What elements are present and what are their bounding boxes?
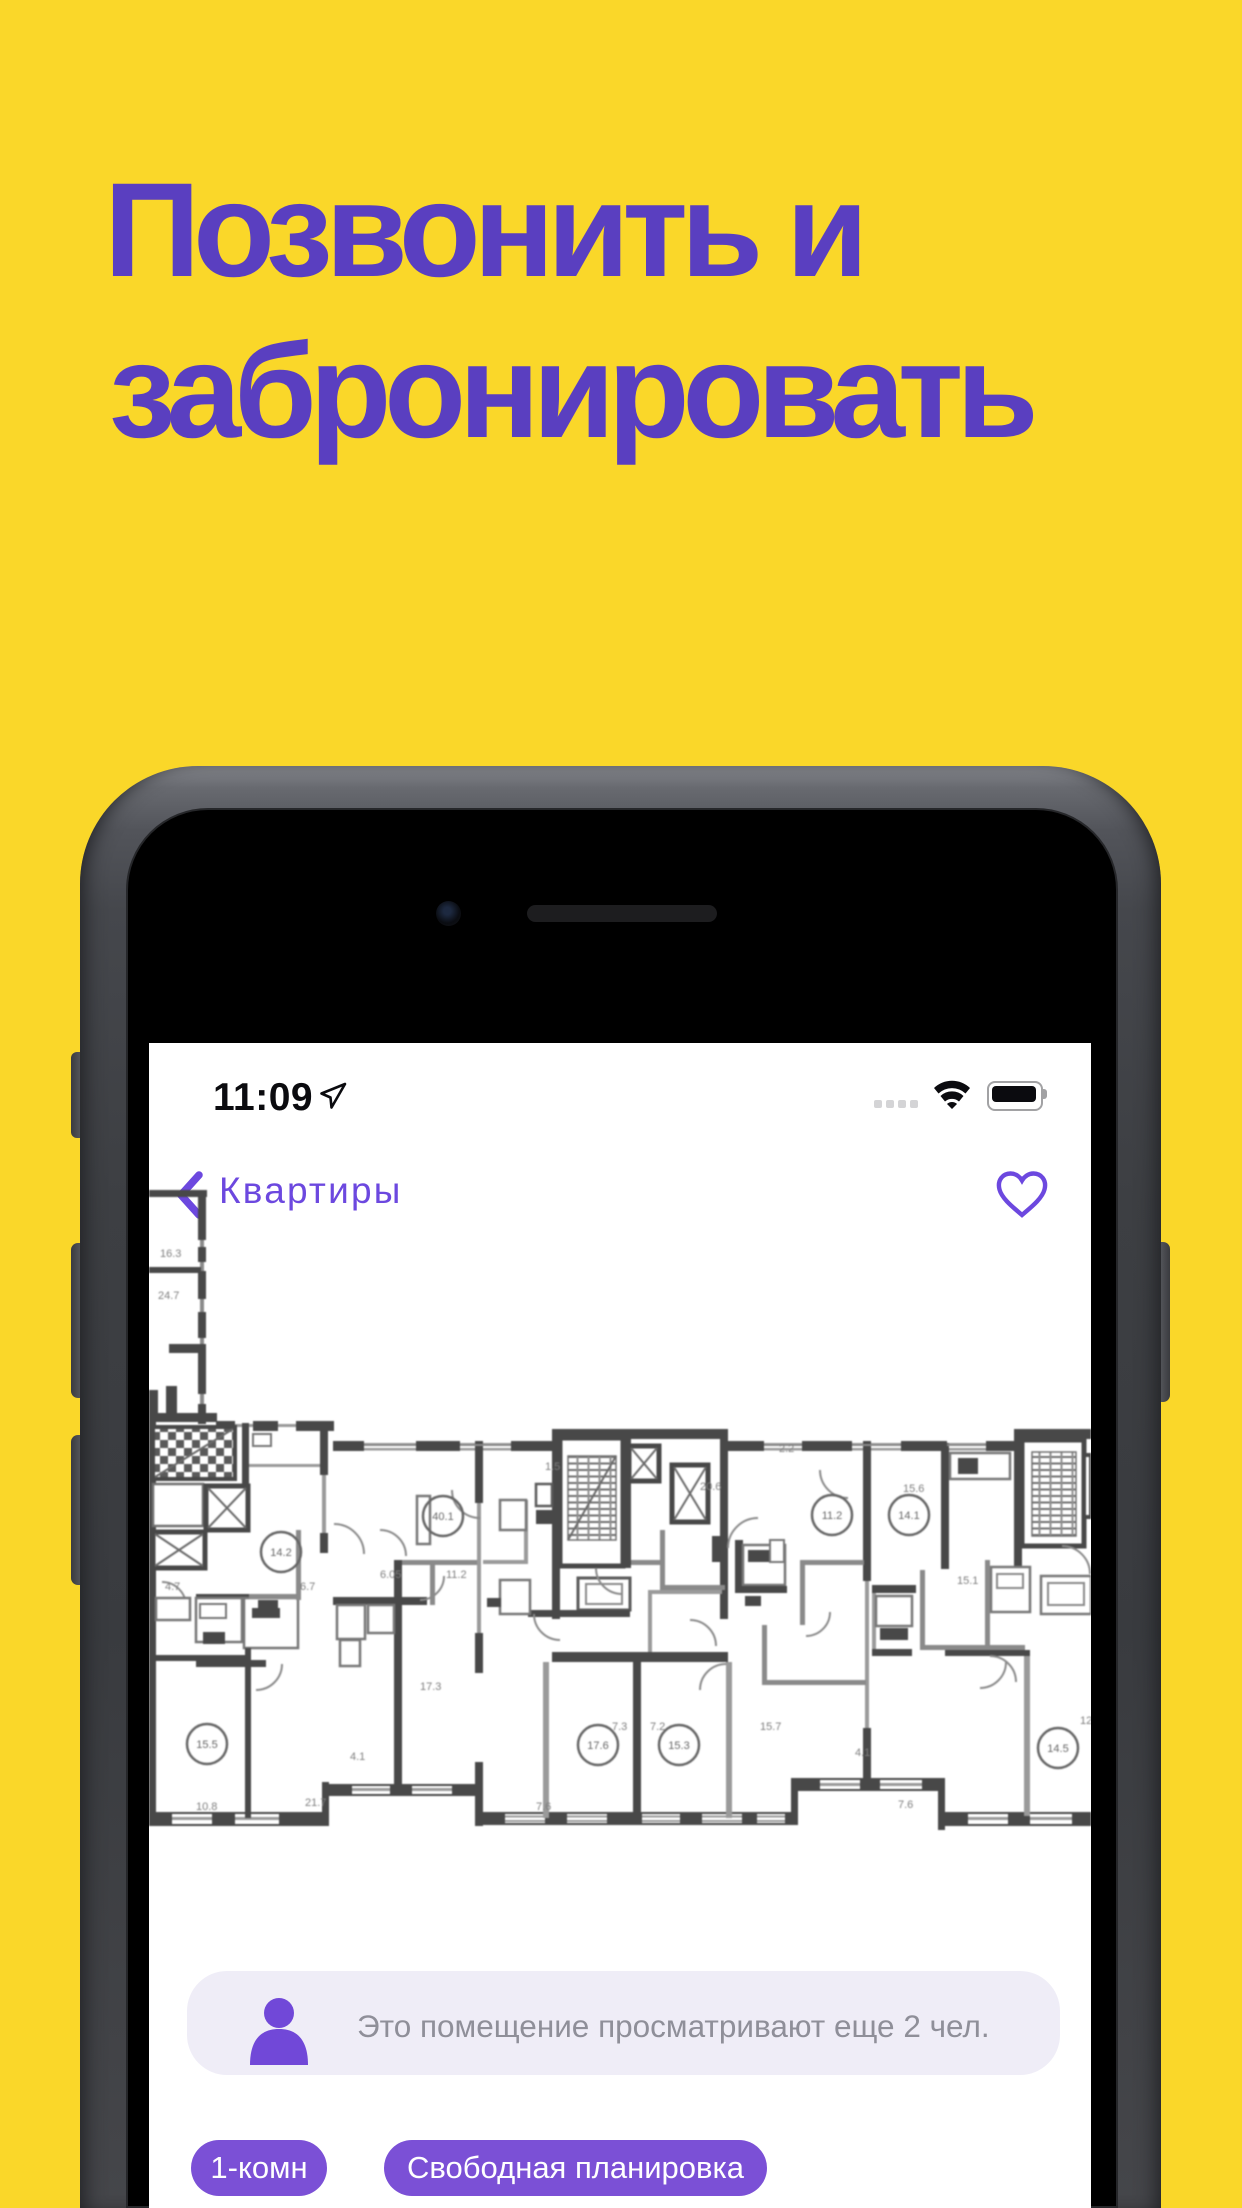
svg-text:7.6: 7.6 xyxy=(536,1801,551,1813)
svg-text:11.2: 11.2 xyxy=(822,1510,843,1522)
svg-text:11.2: 11.2 xyxy=(446,1569,467,1581)
svg-text:15.3: 15.3 xyxy=(668,1740,689,1752)
svg-text:14.5: 14.5 xyxy=(1047,1743,1068,1755)
svg-text:15.5: 15.5 xyxy=(196,1739,217,1751)
svg-text:2.2: 2.2 xyxy=(779,1443,794,1455)
svg-text:6.05: 6.05 xyxy=(380,1569,401,1581)
svg-text:4.1: 4.1 xyxy=(855,1747,870,1759)
svg-text:4.7: 4.7 xyxy=(165,1581,180,1593)
svg-text:12: 12 xyxy=(1080,1715,1091,1727)
svg-text:6.7: 6.7 xyxy=(300,1581,315,1593)
svg-text:21.7: 21.7 xyxy=(305,1797,326,1809)
svg-text:1.5: 1.5 xyxy=(545,1461,560,1473)
svg-text:40.1: 40.1 xyxy=(432,1511,453,1523)
svg-text:10.8: 10.8 xyxy=(196,1801,217,1813)
svg-text:15.7: 15.7 xyxy=(760,1721,781,1733)
svg-text:20.6: 20.6 xyxy=(700,1481,721,1493)
svg-text:16.3: 16.3 xyxy=(160,1248,181,1260)
svg-text:17.6: 17.6 xyxy=(587,1740,608,1752)
svg-text:7.3: 7.3 xyxy=(612,1721,627,1733)
svg-text:15.1: 15.1 xyxy=(957,1575,978,1587)
svg-text:4.1: 4.1 xyxy=(350,1751,365,1763)
svg-text:14.2: 14.2 xyxy=(270,1547,291,1559)
svg-text:17.3: 17.3 xyxy=(420,1681,441,1693)
svg-text:7.6: 7.6 xyxy=(898,1799,913,1811)
svg-text:15.6: 15.6 xyxy=(903,1483,924,1495)
svg-text:7.2: 7.2 xyxy=(650,1721,665,1733)
svg-text:24.7: 24.7 xyxy=(158,1290,179,1302)
svg-text:14.1: 14.1 xyxy=(898,1510,919,1522)
